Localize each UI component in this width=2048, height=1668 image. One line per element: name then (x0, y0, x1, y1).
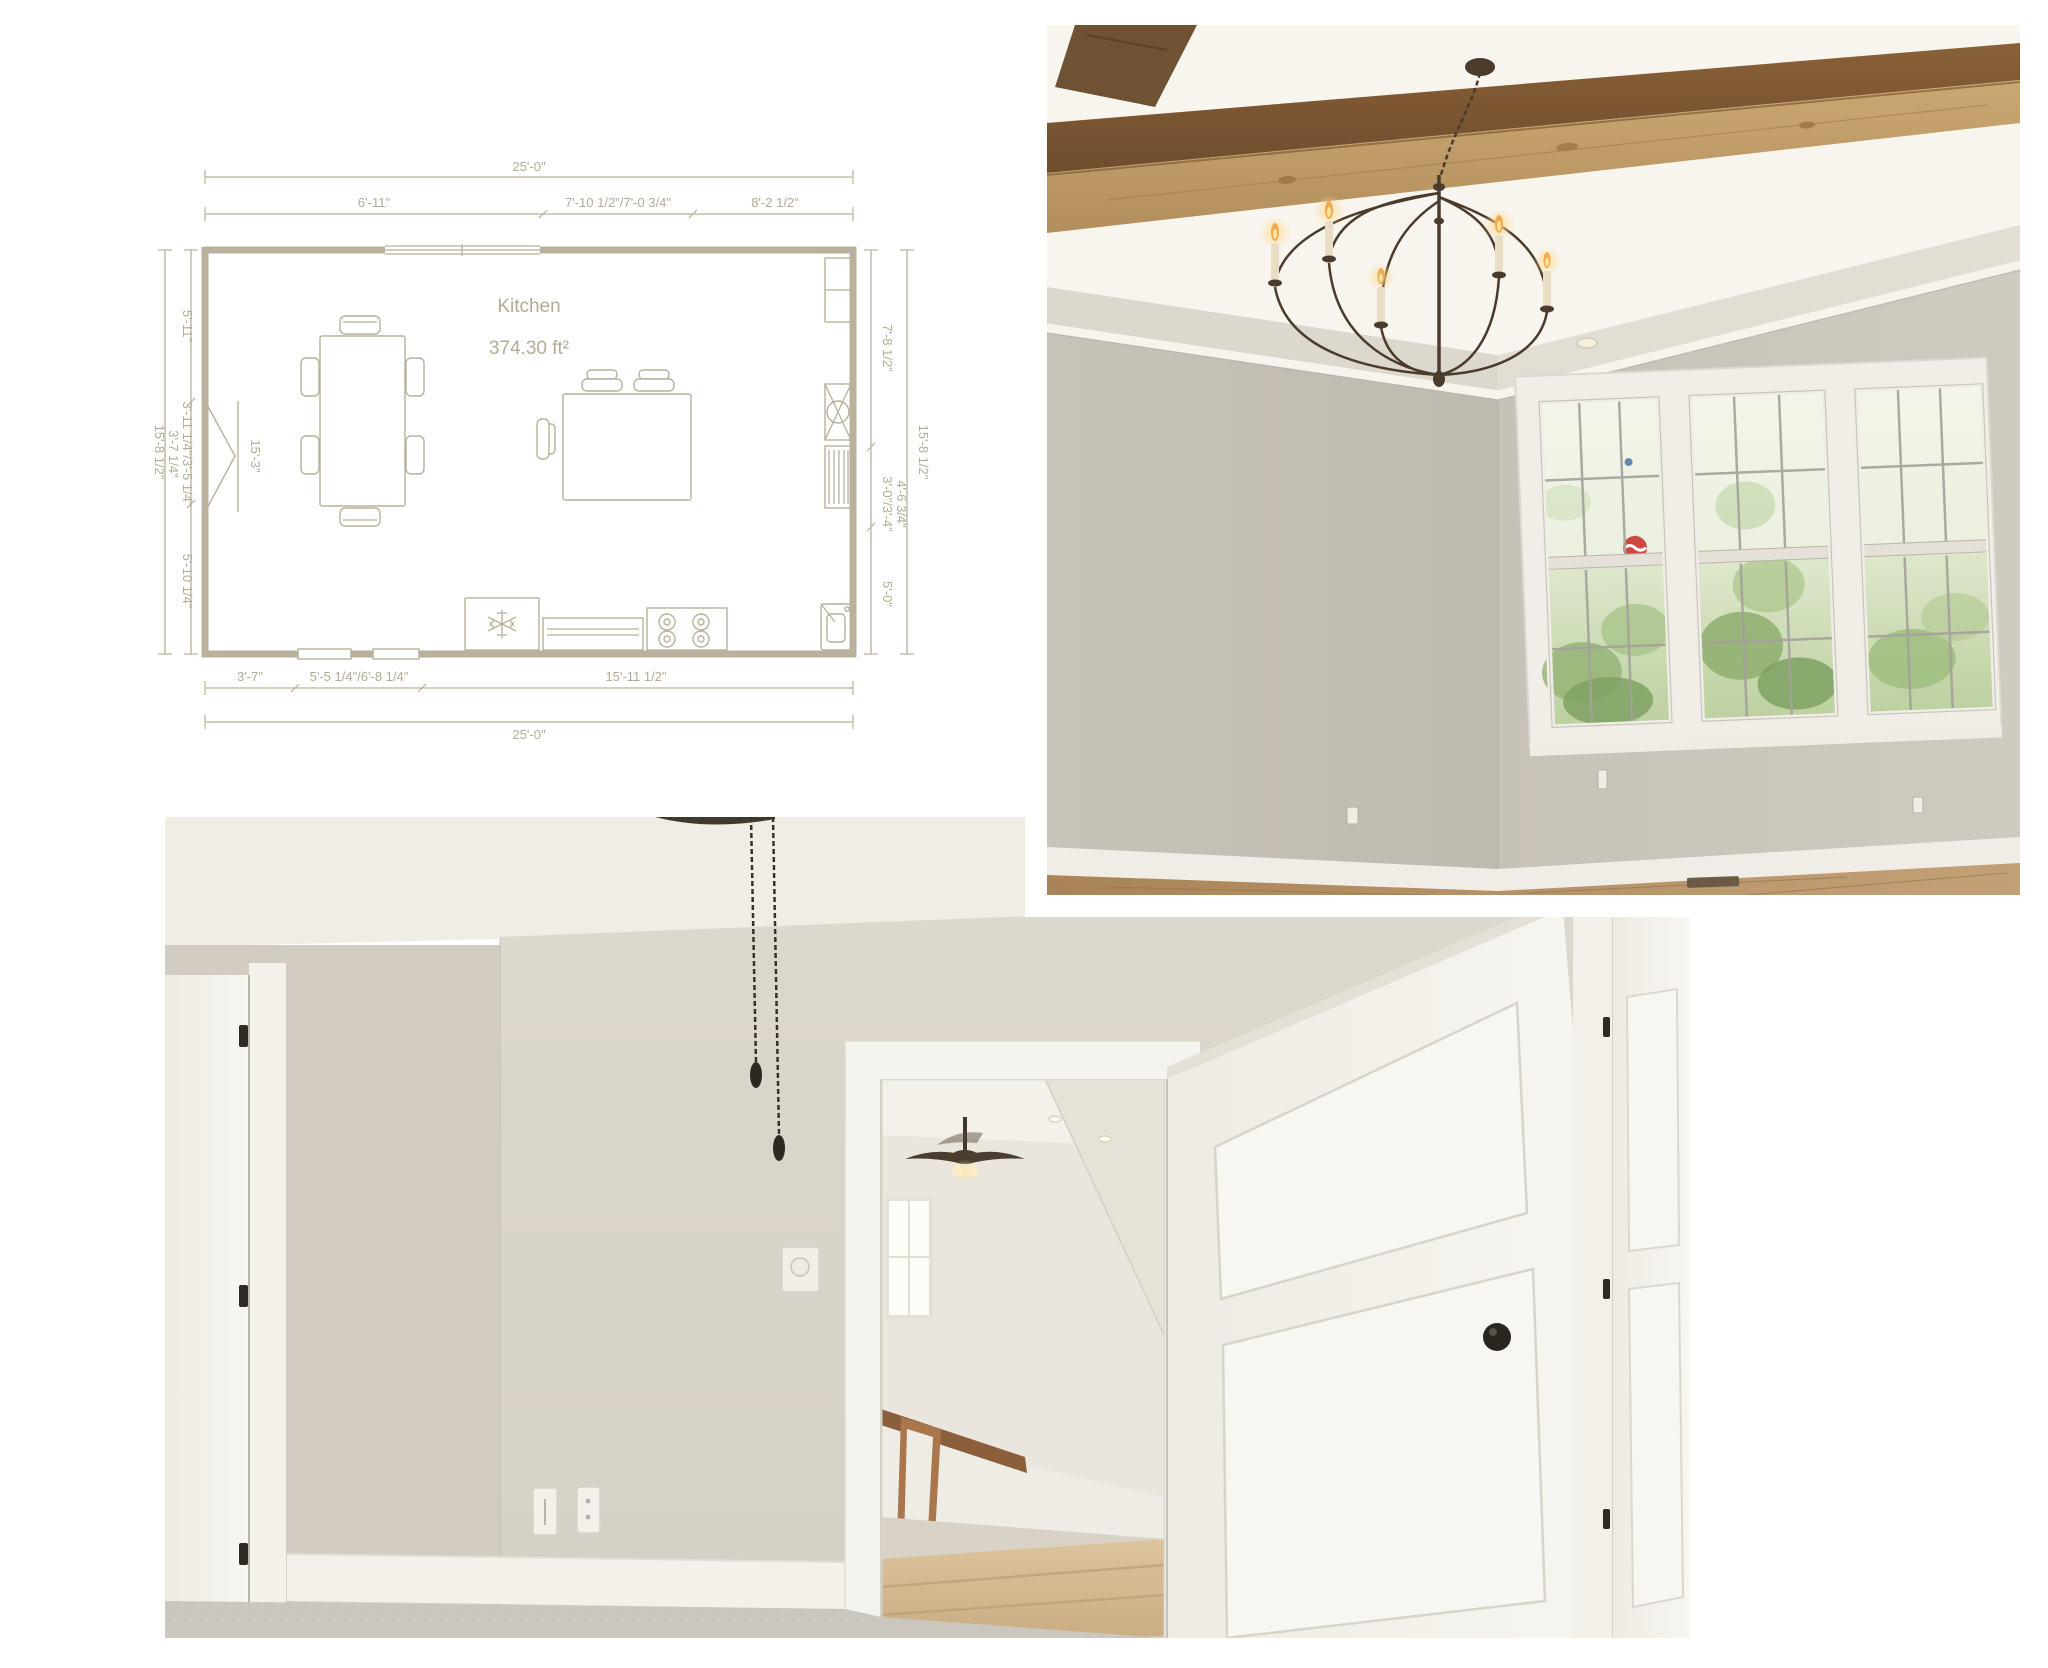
dim-top-overall: 25'-0" (205, 159, 853, 184)
top-wall-window (385, 244, 540, 256)
door-casing (249, 963, 287, 1623)
dim-label: 5'-10 1/4" (180, 554, 195, 609)
dim-label: 15'-11 1/2" (605, 669, 666, 684)
dim-label: 25'-0" (512, 727, 546, 742)
corner-sink (821, 604, 851, 650)
left-wall-window (205, 401, 238, 512)
dim-label: 3'-11 1/4"/3'-5 1/4" (180, 401, 195, 506)
dimmer-switch (782, 1247, 819, 1292)
outlet (1347, 807, 1358, 824)
floor-plan-drawing: 25'-0" 6'-11" 7'-10 1/2"/7'-0 3/4" 8'-2 … (135, 132, 985, 757)
dim-label: 5'-11" (180, 310, 195, 343)
dim-label: 7'-10 1/2"/7'-0 3/4" (565, 195, 671, 210)
recessed-light (1049, 1116, 1061, 1122)
door-slab (165, 975, 249, 1638)
right-closed-door[interactable] (1573, 907, 1690, 1638)
hinge (239, 1285, 248, 1307)
baseboard (287, 1554, 845, 1609)
casing-head (845, 1041, 1200, 1079)
left-wall (1047, 330, 1498, 895)
dim-bottom-overall: 25'-0" (205, 715, 853, 742)
dim-label: 5'-5 1/4"/6'-8 1/4" (310, 669, 409, 684)
triple-window (1515, 358, 2002, 757)
hinge (239, 1025, 248, 1047)
window-unit (1531, 397, 1673, 728)
stool (537, 419, 555, 459)
outlet (1913, 797, 1923, 813)
bedroom-doorway-photo[interactable] (165, 817, 1690, 1638)
dim-left: 15'-8 1/2" 5'-11" 3'-11 1/4"/3'-5 1/4" 3… (152, 250, 198, 654)
dim-top-segments: 6'-11" 7'-10 1/2"/7'-0 3/4" 8'-2 1/2" (205, 195, 853, 221)
base-cabinets (543, 618, 643, 650)
left-door[interactable] (165, 963, 287, 1638)
recessed-light (1099, 1136, 1111, 1142)
stool (582, 370, 622, 391)
dining-room-photo[interactable] (1025, 3, 2042, 917)
refrigerator (465, 598, 539, 650)
kitchen-floor-plan[interactable]: 25'-0" 6'-11" 7'-10 1/2"/7'-0 3/4" 8'-2 … (135, 132, 985, 757)
dim-label: 6'-11" (358, 195, 391, 210)
bottom-wall-opening (373, 649, 419, 659)
stool (634, 370, 674, 391)
dim-label: 15'-8 1/2" (152, 425, 167, 480)
hinge (239, 1543, 248, 1565)
dim-label: 3'-0"/3'-4" (880, 476, 895, 532)
far-window (887, 1199, 931, 1317)
door-panel-lower (1629, 1283, 1683, 1607)
hinge (1603, 1509, 1610, 1529)
casing-left (845, 1041, 881, 1638)
window-unit (1855, 384, 1996, 715)
dim-right: 7'-8 1/2" 3'-0"/3'-4" 4'-6 3/4" 5'-0" 15… (864, 250, 931, 654)
dim-bottom-segments: 3'-7" 5'-5 1/4"/6'-8 1/4" 15'-11 1/2" (205, 669, 853, 695)
dining-room-scene (1047, 25, 2020, 895)
bedroom-scene (165, 817, 1690, 1638)
bottom-wall-opening (298, 649, 351, 659)
dim-label: 3'-7 1/4" (166, 430, 181, 478)
hinge (1603, 1017, 1610, 1037)
dim-label: 15'-3" (248, 439, 263, 473)
dim-label: 15'-8 1/2" (916, 425, 931, 480)
chain-pull (750, 1062, 762, 1088)
door-panel-upper (1627, 989, 1679, 1251)
window-unit (1689, 390, 1839, 721)
dim-label: 7'-8 1/2" (880, 324, 895, 372)
finial (1433, 371, 1445, 387)
room-name: Kitchen (497, 296, 560, 317)
door-knob[interactable] (1483, 1323, 1511, 1351)
kitchen-island (537, 370, 691, 500)
doorway[interactable] (845, 1041, 1200, 1638)
outlet (577, 1487, 600, 1533)
dim-label: 3'-7" (237, 669, 263, 684)
chain-pull (773, 1135, 785, 1161)
range-cooktop (647, 608, 727, 650)
snowflake-icon (488, 610, 516, 638)
hinge (1603, 1279, 1610, 1299)
dining-table (301, 316, 424, 526)
light-switch (1598, 770, 1607, 789)
recessed-light (1577, 338, 1597, 348)
collage-page: 25'-0" 6'-11" 7'-10 1/2"/7'-0 3/4" 8'-2 … (0, 0, 2048, 1668)
dim-label: 25'-0" (512, 159, 546, 174)
dim-label: 8'-2 1/2" (751, 195, 799, 210)
right-wall-cabinets (821, 258, 851, 650)
room-area: 374.30 ft² (489, 338, 569, 359)
floor-vent (1687, 876, 1739, 888)
dim-label: 5'-0" (880, 581, 895, 607)
